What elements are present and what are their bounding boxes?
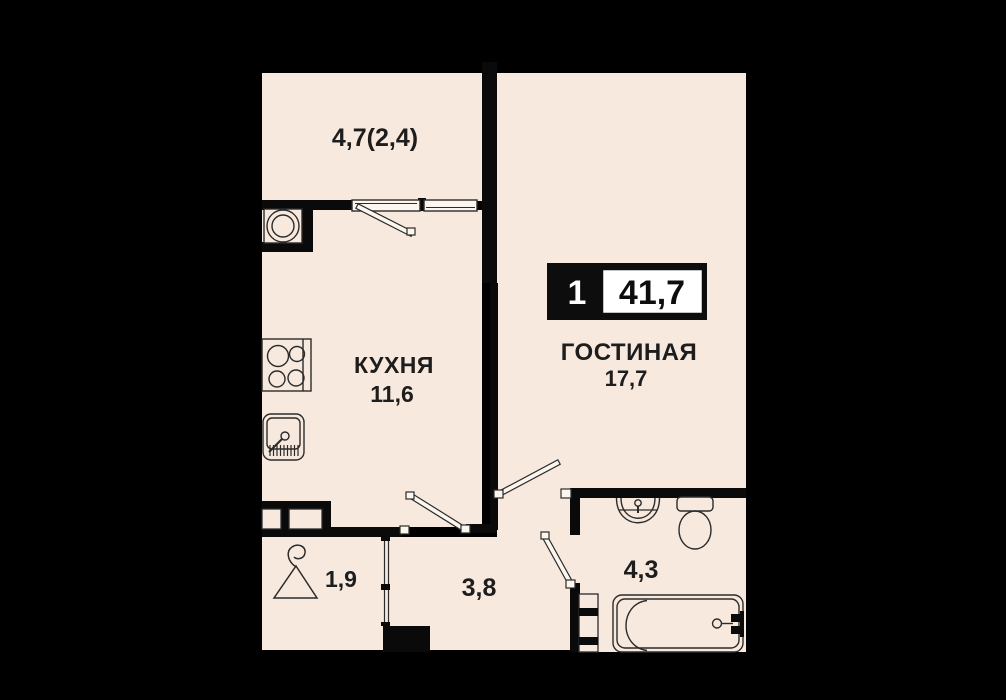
wall-hall-notch (383, 626, 430, 652)
vent-shaft-rung1 (579, 608, 598, 616)
wardrobe-door-tick-top (381, 537, 390, 541)
kitchen-area-label: 11,6 (370, 381, 414, 407)
hinge-bathroom-door (566, 580, 575, 588)
living-name-label: ГОСТИНАЯ (561, 339, 698, 366)
cabinet-cell-2 (289, 509, 322, 529)
washing-machine-icon (264, 209, 302, 243)
balcony-area-label: 4,7(2,4) (332, 124, 418, 152)
bathtub-tap-bar (740, 611, 744, 637)
floor-plan-canvas: 1 41,7 4,7(2,4) КУХНЯ 11,6 ГОСТИНАЯ 17,7… (0, 0, 1006, 700)
wardrobe-door-tick-bottom (381, 622, 390, 626)
toilet-tank (677, 497, 713, 511)
hall-area-label: 3,8 (462, 574, 497, 602)
hinge-living-door (494, 490, 503, 498)
window-frame (424, 200, 477, 211)
stove-icon (262, 339, 311, 391)
wall-bath-left-upper (570, 498, 580, 535)
living-doorway-floor (497, 490, 570, 537)
bathtub-icon (613, 595, 744, 652)
cap-living-doorway (561, 489, 571, 498)
wall-cabinet-divider1 (281, 501, 289, 529)
wall-hall-corner (466, 524, 497, 533)
wall-right-upper (482, 62, 497, 283)
cabinet-cell-1 (262, 509, 281, 529)
wardrobe-area-label: 1,9 (325, 566, 357, 592)
kitchen-sink-icon (263, 414, 304, 460)
cap-balcony-leaf-tip (407, 228, 415, 235)
wall-living-bottom (570, 488, 746, 498)
bathroom-doorway-floor (570, 535, 580, 583)
cap-bathroom-leaf-tip (541, 532, 549, 539)
floor-plan: 1 41,7 4,7(2,4) КУХНЯ 11,6 ГОСТИНАЯ 17,7… (0, 0, 1006, 700)
badge-total-area: 41,7 (619, 274, 685, 312)
kitchen-name-label: КУХНЯ (354, 352, 434, 378)
wall-cabinet-top (262, 501, 331, 509)
wardrobe-floor (262, 537, 385, 650)
cap-kitchen-leaf-tip (406, 492, 414, 499)
hinge-kitchen-door (461, 525, 470, 533)
cap-kitchen-doorway (400, 526, 409, 534)
bathroom-area-label: 4,3 (624, 556, 659, 584)
kitchen-window (424, 200, 477, 211)
vent-shaft-rung2 (579, 637, 598, 645)
washing-machine-body (264, 209, 302, 243)
wall-cabinet-divider2 (322, 501, 331, 529)
area-badge: 1 41,7 (547, 263, 707, 320)
wardrobe-door-tick-mid (381, 584, 390, 590)
badge-room-count: 1 (568, 274, 587, 312)
living-area-label: 17,7 (605, 366, 648, 391)
